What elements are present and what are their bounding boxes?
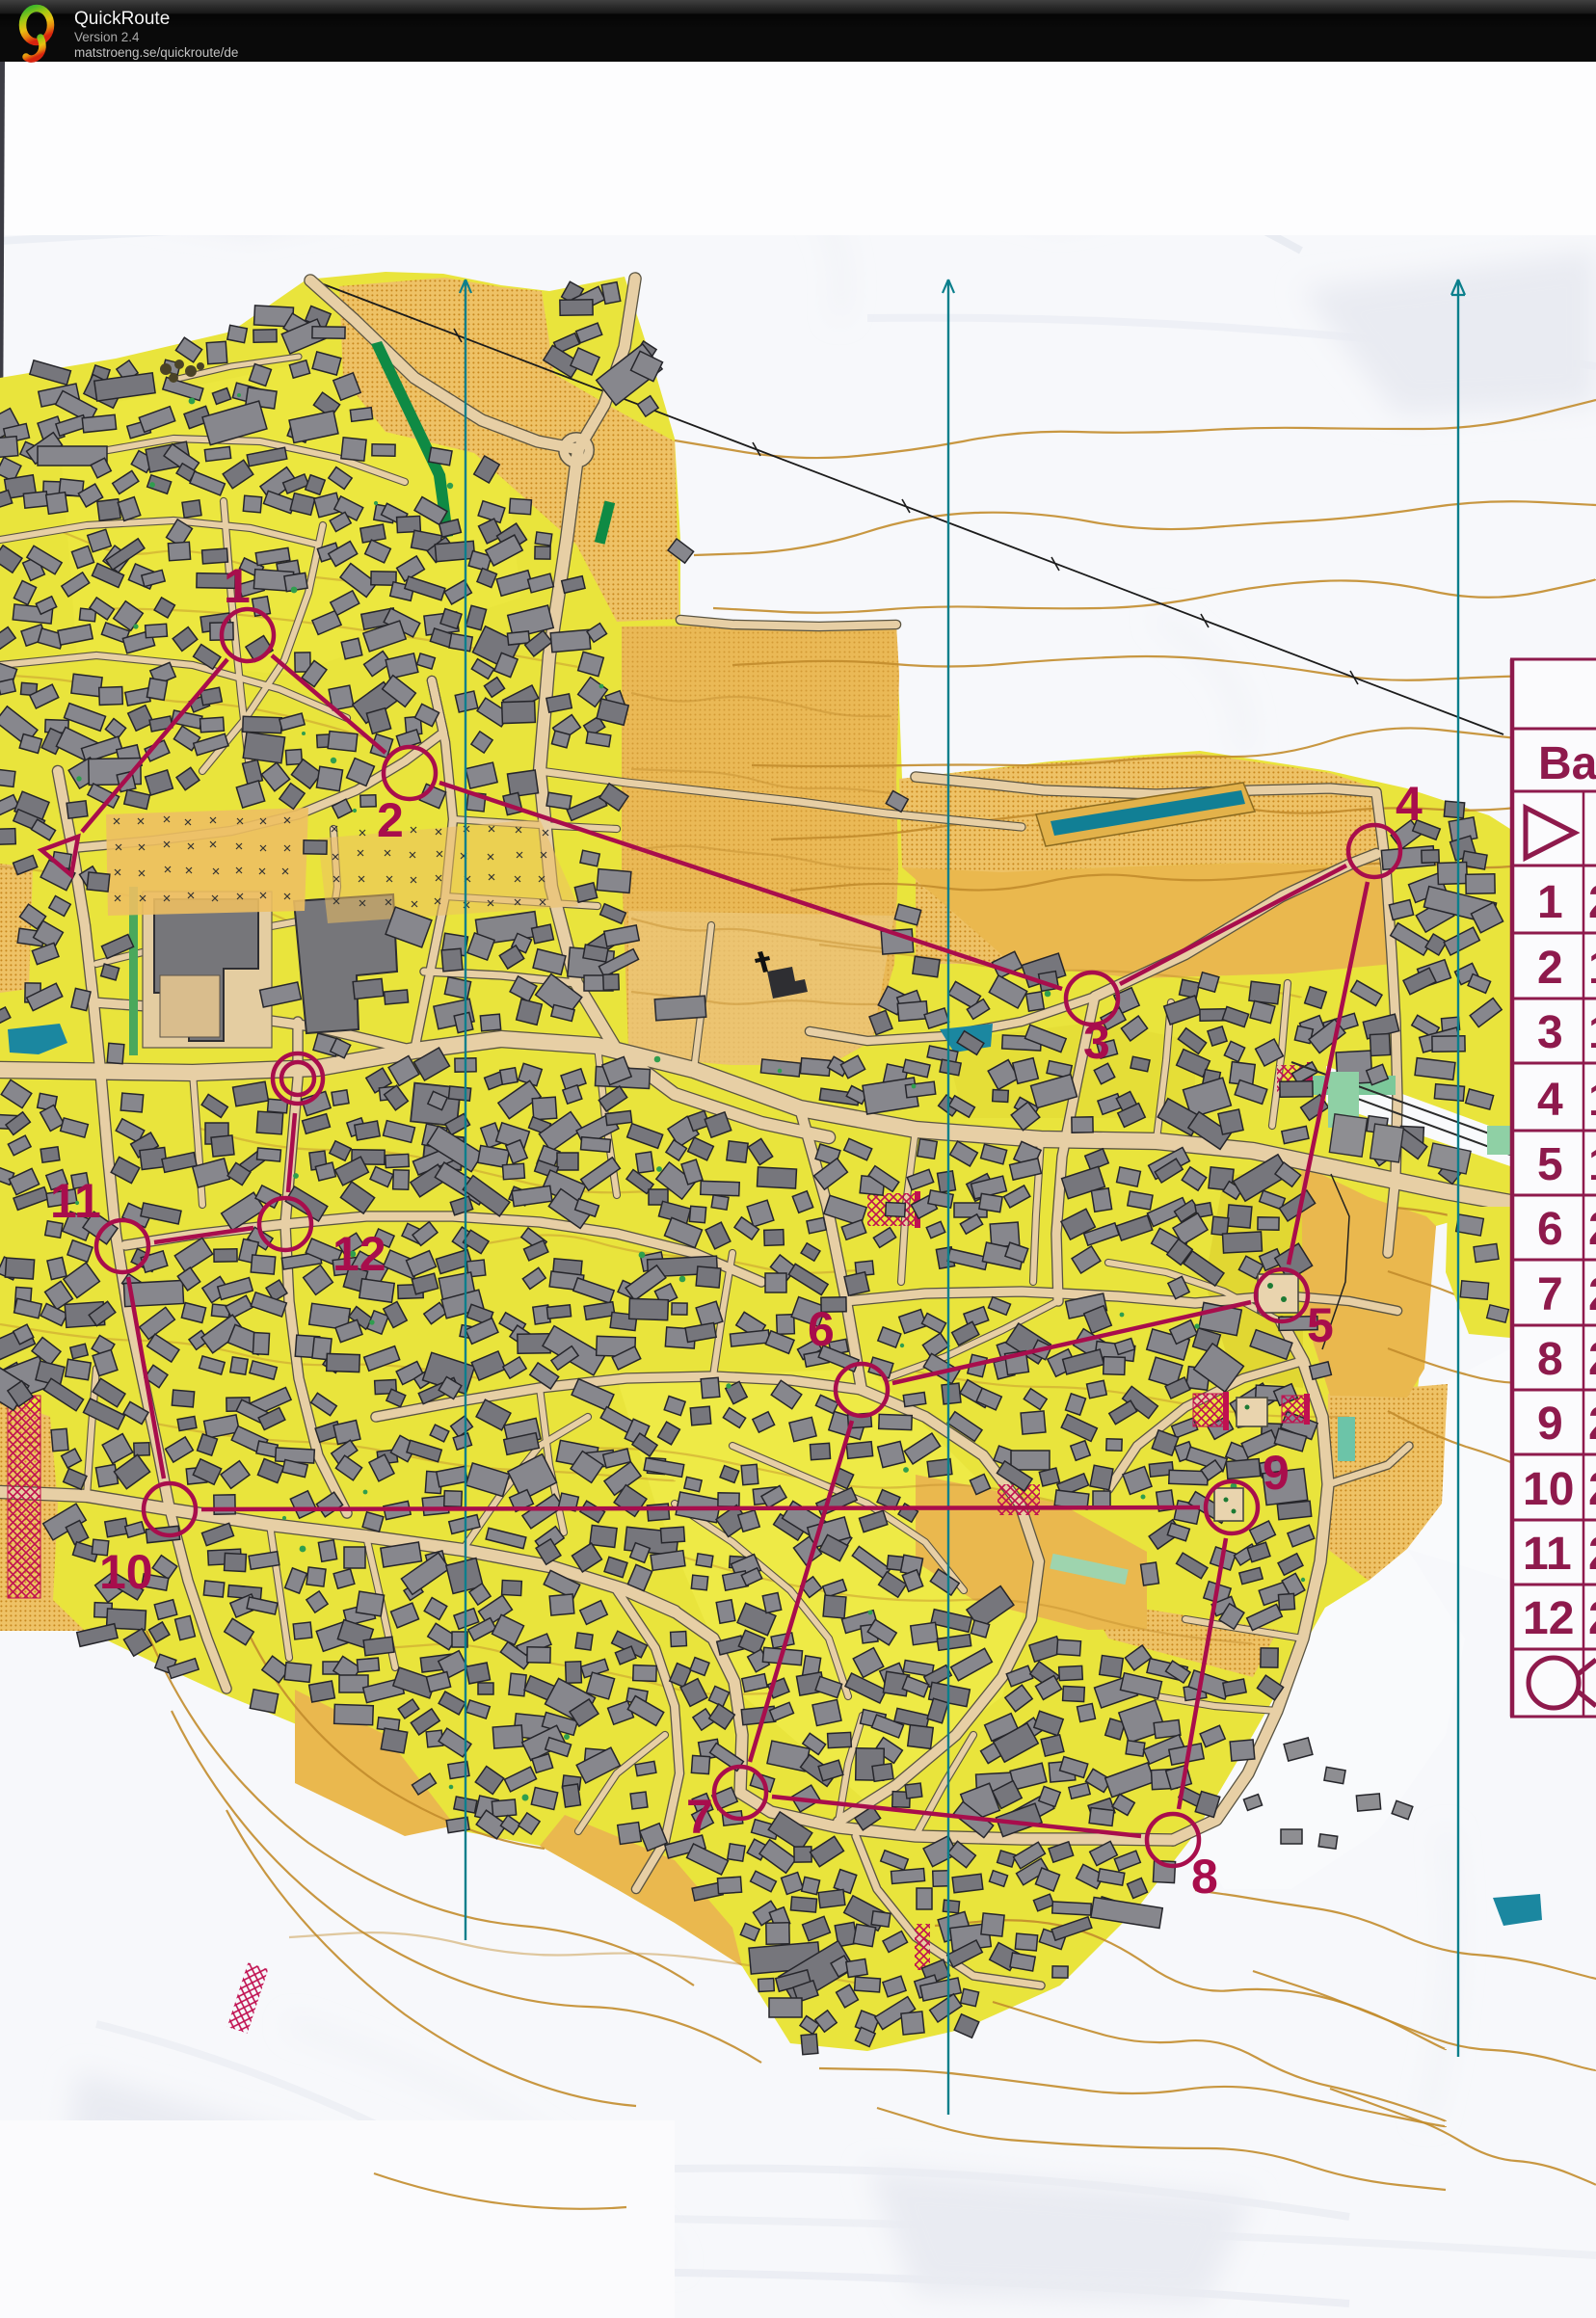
svg-text:1: 1 [1537,877,1563,928]
svg-text:3: 3 [1537,1007,1563,1058]
svg-text:11: 11 [1523,1529,1572,1580]
svg-text:1: 1 [1588,1007,1596,1058]
svg-text:2: 2 [1588,1204,1596,1255]
svg-text:12: 12 [332,1227,386,1281]
svg-text:2: 2 [1588,1464,1596,1515]
svg-text:12: 12 [1523,1593,1574,1644]
svg-text:2: 2 [1588,1334,1596,1385]
svg-text:4: 4 [1537,1075,1563,1126]
svg-text:QuickRoute: QuickRoute [74,9,170,29]
svg-text:9: 9 [1263,1446,1290,1500]
svg-text:5: 5 [1537,1139,1563,1190]
svg-text:Ba: Ba [1538,738,1596,789]
svg-text:7: 7 [686,1790,713,1844]
svg-text:4: 4 [1396,777,1423,831]
svg-text:1: 1 [1588,1075,1596,1126]
svg-text:7: 7 [1537,1269,1563,1320]
svg-text:3: 3 [1083,1015,1110,1069]
svg-text:10: 10 [1523,1464,1574,1515]
svg-text:2: 2 [377,793,404,847]
svg-text:2: 2 [1588,1399,1596,1450]
svg-text:2: 2 [1588,1529,1596,1580]
svg-text:8: 8 [1191,1850,1218,1904]
svg-text:1: 1 [1588,1139,1596,1190]
svg-text:2: 2 [1588,877,1596,928]
svg-text:1: 1 [1588,943,1596,994]
svg-text:2: 2 [1588,1269,1596,1320]
svg-text:9: 9 [1537,1399,1563,1450]
svg-text:5: 5 [1307,1298,1334,1352]
svg-text:Version 2.4: Version 2.4 [74,30,140,44]
svg-text:matstroeng.se/quickroute/de: matstroeng.se/quickroute/de [74,45,238,60]
svg-text:6: 6 [1537,1204,1563,1255]
svg-text:2: 2 [1537,943,1563,994]
svg-text:6: 6 [808,1302,835,1356]
svg-text:2: 2 [1588,1593,1596,1644]
svg-text:10: 10 [99,1545,153,1599]
svg-text:1: 1 [224,559,251,613]
svg-text:11: 11 [50,1174,101,1228]
svg-text:8: 8 [1537,1334,1563,1385]
